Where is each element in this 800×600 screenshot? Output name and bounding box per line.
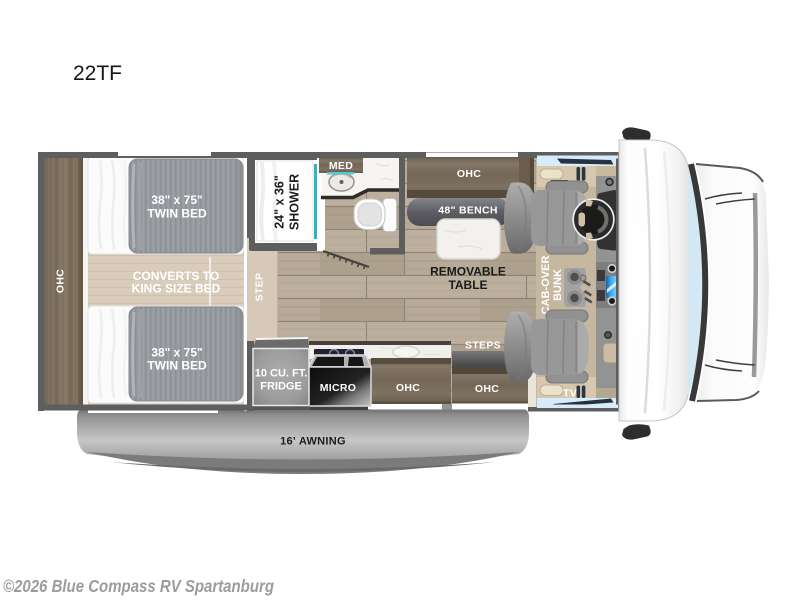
svg-text:OHC: OHC bbox=[457, 168, 481, 180]
svg-text:38" x 75": 38" x 75" bbox=[151, 346, 202, 360]
svg-text:MED: MED bbox=[329, 160, 353, 172]
svg-text:10 CU. FT.: 10 CU. FT. bbox=[255, 368, 308, 380]
svg-text:©2026 Blue Compass RV Spartanb: ©2026 Blue Compass RV Spartanburg bbox=[3, 576, 274, 596]
svg-text:OHC: OHC bbox=[396, 382, 420, 394]
svg-text:STEP: STEP bbox=[254, 273, 266, 302]
svg-text:22TF: 22TF bbox=[73, 62, 122, 85]
svg-text:OHC: OHC bbox=[475, 383, 499, 395]
svg-text:SHOWER: SHOWER bbox=[288, 174, 302, 230]
svg-text:REMOVABLE: REMOVABLE bbox=[430, 265, 506, 279]
svg-text:FRIDGE: FRIDGE bbox=[260, 381, 302, 393]
svg-text:16' AWNING: 16' AWNING bbox=[280, 436, 346, 448]
svg-text:MICRO: MICRO bbox=[320, 382, 357, 394]
svg-text:CAB-OVER: CAB-OVER bbox=[540, 256, 552, 315]
svg-text:24" x 36": 24" x 36" bbox=[273, 175, 287, 229]
svg-text:TWIN BED: TWIN BED bbox=[147, 359, 207, 373]
svg-text:TABLE: TABLE bbox=[448, 278, 487, 292]
svg-text:KING SIZE BED: KING SIZE BED bbox=[132, 282, 221, 296]
svg-text:TWIN BED: TWIN BED bbox=[147, 207, 207, 221]
svg-text:OHC: OHC bbox=[55, 269, 67, 293]
svg-text:BUNK: BUNK bbox=[552, 269, 564, 301]
svg-text:STEPS: STEPS bbox=[465, 340, 501, 352]
svg-text:48" BENCH: 48" BENCH bbox=[438, 205, 498, 217]
svg-text:TV: TV bbox=[563, 388, 577, 400]
svg-text:38" x 75": 38" x 75" bbox=[151, 193, 202, 207]
